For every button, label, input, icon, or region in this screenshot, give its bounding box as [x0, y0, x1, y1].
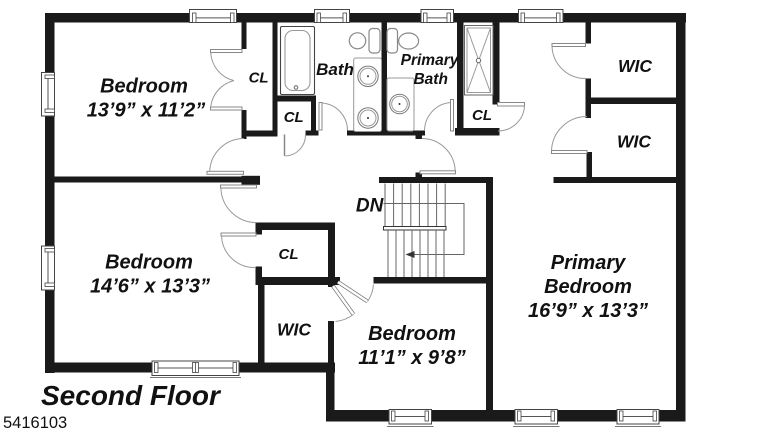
svg-text:Bedroom: Bedroom [100, 75, 188, 97]
svg-text:Bath: Bath [316, 60, 354, 79]
svg-text:DN: DN [356, 196, 385, 217]
svg-text:Primary: Primary [401, 52, 460, 69]
svg-text:5416103: 5416103 [3, 414, 67, 432]
svg-text:Primary: Primary [551, 252, 626, 274]
svg-text:CL: CL [249, 70, 269, 87]
svg-text:CL: CL [284, 109, 304, 126]
svg-text:13’9” x 11’2”: 13’9” x 11’2” [87, 99, 206, 121]
svg-text:CL: CL [472, 107, 492, 124]
svg-text:CL: CL [279, 246, 299, 263]
svg-text:WIC: WIC [618, 56, 652, 76]
svg-text:Bedroom: Bedroom [368, 323, 456, 345]
svg-text:Bedroom: Bedroom [544, 276, 632, 298]
svg-text:Bath: Bath [413, 71, 447, 88]
svg-text:16’9” x 13’3”: 16’9” x 13’3” [528, 300, 648, 322]
svg-text:WIC: WIC [617, 131, 651, 151]
svg-text:14’6” x 13’3”: 14’6” x 13’3” [90, 276, 210, 298]
svg-text:Bedroom: Bedroom [105, 251, 193, 273]
svg-text:Second Floor: Second Floor [41, 380, 222, 411]
svg-text:11’1” x 9’8”: 11’1” x 9’8” [358, 347, 465, 369]
svg-text:WIC: WIC [277, 319, 311, 339]
